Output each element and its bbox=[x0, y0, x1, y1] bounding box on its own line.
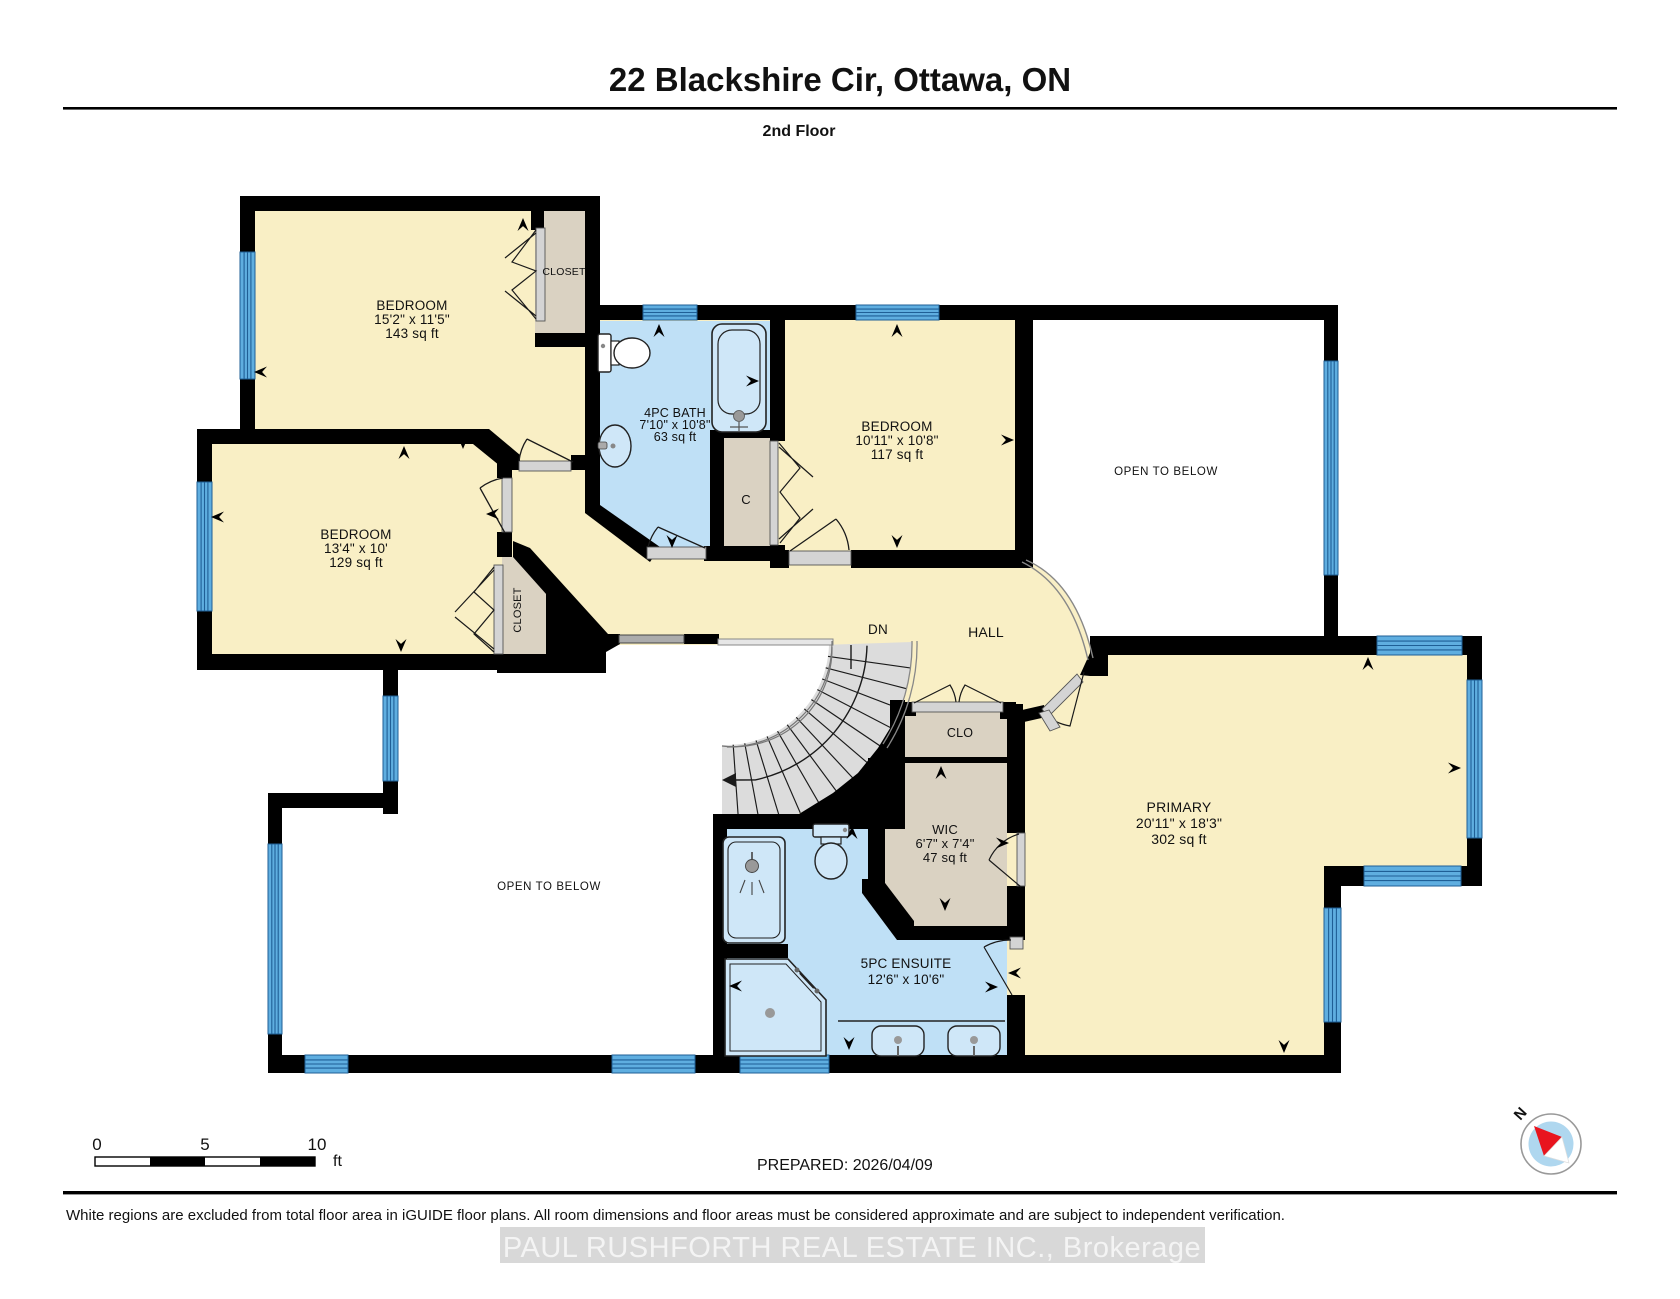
svg-text:5: 5 bbox=[200, 1135, 209, 1154]
svg-text:White regions are excluded fro: White regions are excluded from total fl… bbox=[66, 1207, 1285, 1224]
svg-text:C: C bbox=[741, 492, 751, 507]
svg-text:DN: DN bbox=[868, 622, 888, 637]
svg-text:N: N bbox=[1511, 1104, 1531, 1123]
svg-text:BEDROOM15'2" x 11'5"143 sq ft: BEDROOM15'2" x 11'5"143 sq ft bbox=[374, 298, 450, 341]
svg-text:CLOSET: CLOSET bbox=[542, 266, 586, 278]
svg-text:CLO: CLO bbox=[947, 726, 973, 740]
svg-text:2nd Floor: 2nd Floor bbox=[763, 123, 836, 140]
svg-text:ft: ft bbox=[333, 1153, 342, 1170]
svg-text:OPEN TO BELOW: OPEN TO BELOW bbox=[1114, 466, 1218, 478]
svg-text:0: 0 bbox=[92, 1135, 101, 1154]
svg-text:22 Blackshire Cir, Ottawa, ON: 22 Blackshire Cir, Ottawa, ON bbox=[609, 61, 1071, 98]
svg-text:OPEN TO BELOW: OPEN TO BELOW bbox=[497, 881, 601, 893]
svg-text:CLOSET: CLOSET bbox=[512, 587, 524, 632]
svg-text:HALL: HALL bbox=[968, 624, 1004, 640]
svg-text:PREPARED: 2026/04/09: PREPARED: 2026/04/09 bbox=[757, 1157, 933, 1174]
svg-text:PAUL RUSHFORTH REAL ESTATE INC: PAUL RUSHFORTH REAL ESTATE INC., Brokera… bbox=[503, 1232, 1201, 1264]
svg-text:5PC ENSUITE12'6" x 10'6": 5PC ENSUITE12'6" x 10'6" bbox=[861, 956, 952, 987]
svg-text:10: 10 bbox=[308, 1135, 327, 1154]
svg-text:BEDROOM13'4" x 10'129 sq ft: BEDROOM13'4" x 10'129 sq ft bbox=[320, 527, 391, 570]
